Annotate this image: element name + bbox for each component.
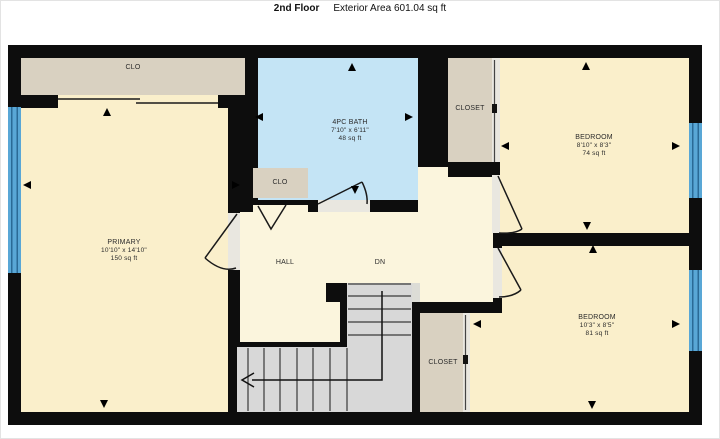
page-title: 2nd FloorExterior Area 601.04 sq ft xyxy=(0,3,720,14)
hall-floor-lower xyxy=(240,302,340,342)
dimension-arrow-icon xyxy=(582,62,590,70)
floorplan: CLO PRIMARY 10'10" x 14'10" 150 sq ft 4P… xyxy=(8,45,702,425)
dimension-arrow-icon xyxy=(501,142,509,150)
dimension-arrow-icon xyxy=(583,222,591,230)
room-label-closet-upper: CLOSET xyxy=(455,105,484,113)
dimension-arrow-icon xyxy=(351,186,359,194)
stairs-upper-run xyxy=(347,283,412,412)
room-label-bath: 4PC BATH 7'10" x 6'11" 48 sq ft xyxy=(331,119,369,143)
closet-upper-door-strip xyxy=(492,58,500,162)
room-label-bedroom-lower: BEDROOM 10'3" x 8'5" 81 sq ft xyxy=(578,314,616,338)
hall-floor-nook xyxy=(418,167,448,212)
dimension-arrow-icon xyxy=(255,113,263,121)
room-label-closet-top-left: CLO xyxy=(126,64,141,72)
dimension-arrow-icon xyxy=(672,142,680,150)
dimension-arrow-icon xyxy=(348,63,356,71)
room-label-closet-lower: CLOSET xyxy=(428,359,457,367)
stairs-lower-run xyxy=(237,347,347,412)
dimension-arrow-icon xyxy=(588,401,596,409)
bedroom-lower-doorway xyxy=(493,248,502,298)
hall-floor-nook xyxy=(448,177,493,212)
window-icon-right-lower xyxy=(689,270,702,351)
wall-segment xyxy=(21,95,58,108)
closet-lower-door-strip xyxy=(463,313,470,412)
primary-doorway xyxy=(228,213,240,270)
window-icon-right-upper xyxy=(689,123,702,198)
dimension-arrow-icon xyxy=(232,181,240,189)
room-label-hall-closet: CLO xyxy=(273,179,288,187)
room-label-primary: PRIMARY 10'10" x 14'10" 150 sq ft xyxy=(101,239,147,263)
dimension-arrow-icon xyxy=(405,113,413,121)
window-icon-left xyxy=(8,107,21,273)
bath-doorway xyxy=(318,200,370,212)
stair-edge xyxy=(412,283,420,302)
bedroom-upper-doorway xyxy=(492,175,500,233)
dimension-arrow-icon xyxy=(103,108,111,116)
wall-segment xyxy=(218,95,245,108)
room-label-hall: HALL xyxy=(276,259,294,267)
stair-wall-stub xyxy=(326,283,347,302)
hall-floor-patch xyxy=(253,205,308,212)
floorplan-page: 2nd FloorExterior Area 601.04 sq ft xyxy=(0,0,720,439)
exterior-area-text: Exterior Area 601.04 sq ft xyxy=(333,3,446,14)
dimension-arrow-icon xyxy=(473,320,481,328)
dimension-arrow-icon xyxy=(100,400,108,408)
room-label-bedroom-upper: BEDROOM 8'10" x 8'3" 74 sq ft xyxy=(575,134,613,158)
dimension-arrow-icon xyxy=(23,181,31,189)
dimension-arrow-icon xyxy=(589,245,597,253)
floor-title: 2nd Floor xyxy=(274,3,320,14)
stairs-dn-label: DN xyxy=(375,259,386,267)
dimension-arrow-icon xyxy=(672,320,680,328)
